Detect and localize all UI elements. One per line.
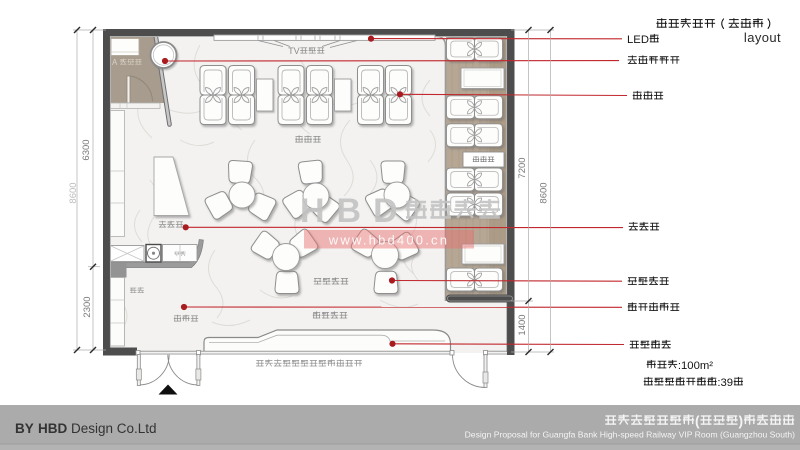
- svg-text:2300: 2300: [82, 296, 93, 317]
- svg-text:LED: LED: [627, 34, 649, 46]
- svg-text:1400: 1400: [517, 314, 528, 335]
- svg-text:HBD: HBD: [38, 421, 67, 436]
- svg-text:8600: 8600: [68, 182, 79, 203]
- svg-text:TV: TV: [288, 46, 300, 56]
- svg-text:layout: layout: [744, 30, 781, 45]
- svg-text:8600: 8600: [539, 182, 550, 203]
- svg-text:(: (: [695, 414, 700, 429]
- svg-text::39: :39: [717, 377, 733, 389]
- svg-text::100m²: :100m²: [678, 360, 713, 372]
- svg-text:): ): [739, 414, 744, 429]
- svg-text:Design Proposal for Guangfa Ba: Design Proposal for Guangfa Bank High-sp…: [465, 430, 796, 440]
- svg-text:Design Co.Ltd: Design Co.Ltd: [71, 421, 157, 436]
- svg-text:www.hbd400.cn: www.hbd400.cn: [328, 233, 449, 248]
- svg-text:BY: BY: [15, 421, 34, 436]
- svg-text:HBD: HBD: [300, 192, 410, 230]
- svg-text:A: A: [112, 58, 118, 67]
- svg-text:6300: 6300: [81, 139, 92, 160]
- svg-text:7200: 7200: [517, 157, 528, 178]
